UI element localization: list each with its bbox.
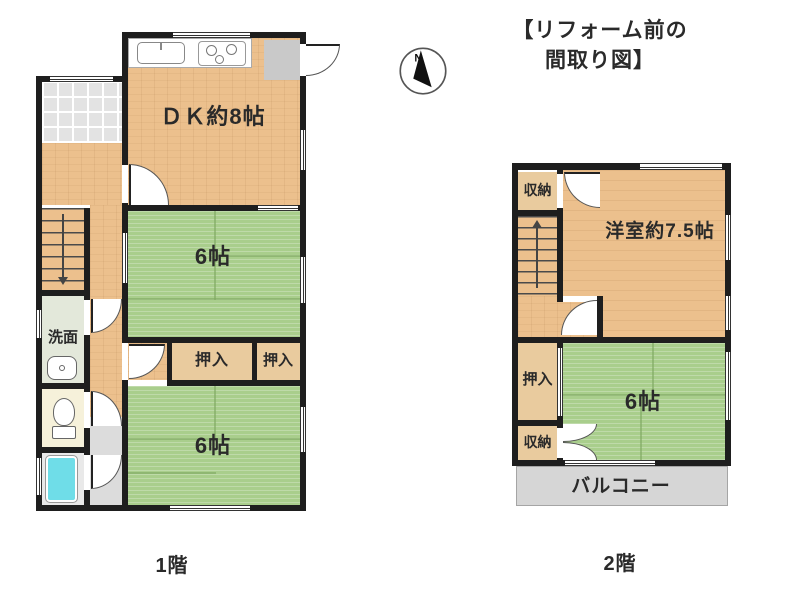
toilet-tank-icon <box>52 426 76 439</box>
burner-icon <box>215 55 224 64</box>
wall <box>512 210 563 216</box>
wall <box>84 208 90 296</box>
balcony-label: バルコニー <box>551 477 691 498</box>
window <box>300 130 306 170</box>
window <box>640 163 722 170</box>
title-line1: 【リフォーム前の <box>490 16 710 46</box>
floorplan-canvas: 【リフォーム前の 間取り図】 N <box>0 0 787 600</box>
entry-door-arc <box>306 44 340 76</box>
tatami-line <box>128 472 216 474</box>
hallway-upper <box>42 143 122 205</box>
stairs-up-arrow <box>532 220 542 228</box>
washbasin-drain <box>59 365 65 371</box>
sliding-door <box>258 205 298 211</box>
room-label-washroom: 洗面 <box>39 330 87 347</box>
room-label-tatami-upper: 6帖 <box>173 245 253 269</box>
window <box>36 458 42 495</box>
bathtub-icon <box>46 456 77 502</box>
compass-n-label: N <box>414 52 422 64</box>
refrigerator-space <box>264 40 300 80</box>
window <box>565 460 655 466</box>
wall <box>167 380 306 386</box>
sliding-door <box>122 233 128 283</box>
door-opening <box>122 165 128 203</box>
window <box>173 32 250 38</box>
room-label-dk: ＤＫ約8帖 <box>133 105 293 129</box>
compass-icon: N <box>397 45 449 97</box>
entrance-genkan <box>42 82 122 143</box>
window <box>300 407 306 452</box>
room-label-closet-floor2: 押入 <box>515 372 560 389</box>
room-label-closet-right: 押入 <box>255 353 301 370</box>
wall <box>597 296 603 343</box>
floor2-caption: 2階 <box>580 553 660 575</box>
room-label-storage-bottom: 収納 <box>515 435 560 450</box>
wall <box>122 337 306 343</box>
stairs-arrow-line <box>62 214 64 278</box>
wall <box>36 383 90 389</box>
faucet-icon <box>160 42 162 50</box>
window <box>725 352 731 420</box>
room-label-closet-left: 押入 <box>172 352 252 370</box>
door-opening <box>122 343 128 380</box>
wall <box>36 447 90 453</box>
title-line2: 間取り図】 <box>490 46 710 76</box>
entry-sliding-door <box>50 76 113 82</box>
window <box>300 257 306 303</box>
room-label-western: 洋室約7.5帖 <box>575 222 745 243</box>
door-opening <box>84 455 90 490</box>
tatami-line <box>214 386 216 440</box>
window <box>725 296 731 330</box>
burner-icon <box>226 44 237 55</box>
room-label-tatami-lower: 6帖 <box>173 434 253 458</box>
page-title: 【リフォーム前の 間取り図】 <box>490 16 710 77</box>
stairs-arrow-line <box>536 228 538 288</box>
room-label-storage-top: 収納 <box>515 183 560 198</box>
wall <box>36 290 90 296</box>
wall <box>512 420 563 426</box>
toilet-bowl-icon <box>53 398 75 426</box>
window <box>170 505 250 511</box>
wall <box>518 337 725 343</box>
burner-icon <box>206 45 217 56</box>
floor1-caption: 1階 <box>132 555 212 577</box>
stairs-down-arrow <box>58 277 68 285</box>
door-opening <box>84 392 90 428</box>
room-label-tatami-floor2: 6帖 <box>603 390 683 414</box>
